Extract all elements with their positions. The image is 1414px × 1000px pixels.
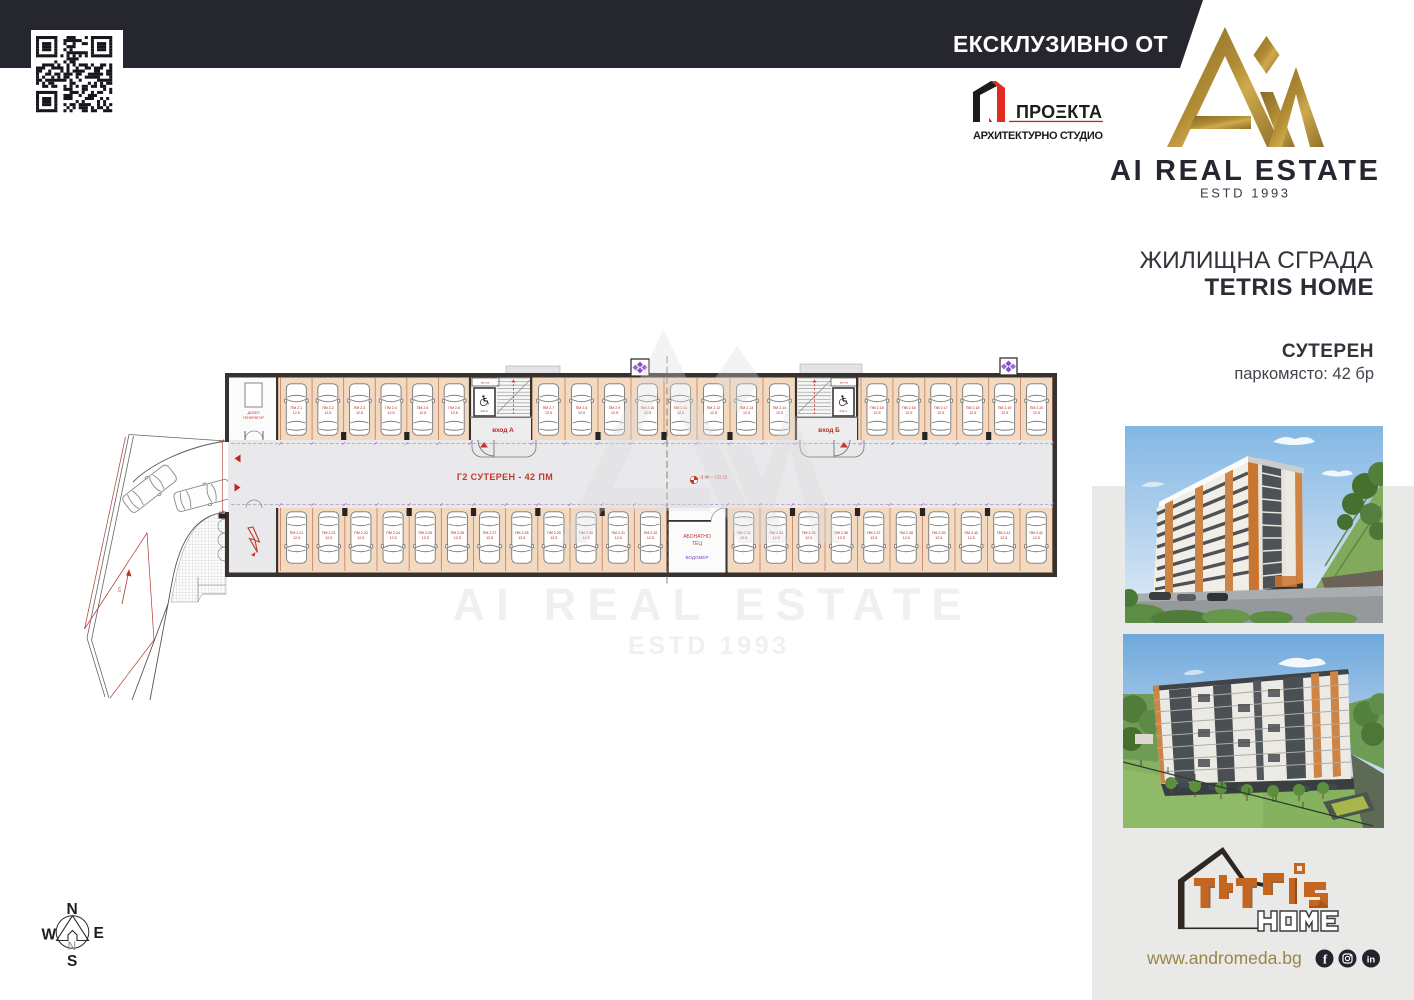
svg-text:12.5: 12.5 [486,536,493,540]
svg-text:630 кг: 630 кг [481,409,489,413]
svg-text:АБОНАТНО: АБОНАТНО [683,534,711,540]
svg-text:AI REAL ESTATE: AI REAL ESTATE [453,579,962,630]
svg-text:N: N [68,939,77,953]
svg-text:12.5: 12.5 [776,411,783,415]
svg-text:12.5: 12.5 [838,536,845,540]
svg-text:Г2 СУТЕРЕН - 42 ПМ: Г2 СУТЕРЕН - 42 ПМ [457,472,553,482]
svg-text:12.5: 12.5 [870,536,877,540]
svg-text:f: f [1323,952,1328,967]
svg-text:ул.: ул. [116,585,122,592]
svg-text:12.5: 12.5 [615,536,622,540]
svg-text:12.5: 12.5 [937,411,944,415]
svg-text:12.5: 12.5 [968,536,975,540]
svg-text:ПМ 2.15: ПМ 2.15 [870,406,884,410]
svg-text:ПМ 2.29: ПМ 2.29 [547,531,561,535]
svg-text:ПМ 2.37: ПМ 2.37 [867,531,881,535]
svg-text:12.5: 12.5 [293,536,300,540]
svg-text:12.5: 12.5 [969,411,976,415]
svg-text:ПМ 2.28: ПМ 2.28 [515,531,529,535]
svg-text:ВОДОМЕР: ВОДОМЕР [685,555,708,560]
svg-text:ПМ 2.14: ПМ 2.14 [773,406,787,410]
svg-text:ПМ 2.22: ПМ 2.22 [322,531,336,535]
svg-text:ПМ 2.26: ПМ 2.26 [451,531,465,535]
svg-text:12.5: 12.5 [325,536,332,540]
svg-text:ПМ 2.9: ПМ 2.9 [609,406,621,410]
svg-text:ESTD 1993: ESTD 1993 [1200,186,1288,201]
svg-text:in: in [1367,955,1376,966]
svg-text:12.5: 12.5 [388,411,395,415]
svg-text:ПМ 2.25: ПМ 2.25 [418,531,432,535]
svg-text:12.5: 12.5 [324,411,331,415]
svg-text:12.5: 12.5 [611,411,618,415]
svg-text:ПМ 2.7: ПМ 2.7 [543,406,555,410]
svg-text:ав.ток: ав.ток [481,381,490,385]
svg-text:ПМ 2.16: ПМ 2.16 [902,406,916,410]
svg-text:ПМ 2.19: ПМ 2.19 [998,406,1012,410]
svg-text:вход Б: вход Б [818,427,840,434]
svg-text:ПМ 2.38: ПМ 2.38 [899,531,913,535]
svg-text:ПМ 2.27: ПМ 2.27 [483,531,497,535]
svg-text:ав.ток: ав.ток [840,381,849,385]
svg-text:12.5: 12.5 [1033,411,1040,415]
svg-text:12.5: 12.5 [903,536,910,540]
svg-text:ПМ 2.23: ПМ 2.23 [354,531,368,535]
svg-text:ПМ 2.32: ПМ 2.32 [644,531,658,535]
svg-text:12.5: 12.5 [419,411,426,415]
svg-text:N: N [67,901,78,918]
svg-text:12.5: 12.5 [357,536,364,540]
svg-text:ДИЗЕЛ: ДИЗЕЛ [248,411,261,415]
svg-text:AI REAL ESTATE: AI REAL ESTATE [1110,155,1378,187]
svg-text:ПМ 2.2: ПМ 2.2 [322,406,334,410]
svg-text:12.5: 12.5 [356,411,363,415]
svg-text:вход А: вход А [492,427,514,434]
svg-text:12.5: 12.5 [935,536,942,540]
svg-text:АРХИТЕКТУРНО СТУДИО: АРХИТЕКТУРНО СТУДИО [973,130,1103,142]
svg-text:S: S [67,953,77,970]
svg-text:12.5: 12.5 [451,411,458,415]
svg-text:ТЕЦ: ТЕЦ [692,541,702,547]
svg-text:12.5: 12.5 [1001,411,1008,415]
svg-text:ESTD 1993: ESTD 1993 [628,632,786,660]
svg-text:12.5: 12.5 [873,411,880,415]
svg-text:12.5: 12.5 [293,411,300,415]
svg-text:12.5: 12.5 [578,411,585,415]
svg-text:E: E [94,925,104,942]
svg-text:12.5: 12.5 [422,536,429,540]
svg-text:ПМ 2.3: ПМ 2.3 [354,406,366,410]
svg-text:ПМ 2.39: ПМ 2.39 [932,531,946,535]
svg-text:ПМ 2.8: ПМ 2.8 [576,406,588,410]
svg-text:12.5: 12.5 [545,411,552,415]
svg-text:W: W [42,927,57,944]
svg-text:ПМ 2.31: ПМ 2.31 [611,531,625,535]
svg-text:12.5: 12.5 [390,536,397,540]
svg-text:ПМ 2.1: ПМ 2.1 [291,406,303,410]
svg-text:12.5: 12.5 [454,536,461,540]
svg-text:ПМ 2.21: ПМ 2.21 [290,531,304,535]
svg-text:ПМ 2.5: ПМ 2.5 [417,406,429,410]
svg-text:ПМ 2.18: ПМ 2.18 [966,406,980,410]
svg-text:12.5: 12.5 [1033,536,1040,540]
svg-text:12.5: 12.5 [905,411,912,415]
svg-text:ПМ 2.20: ПМ 2.20 [1030,406,1044,410]
svg-text:ПМ 2.24: ПМ 2.24 [386,531,400,535]
svg-text:12.5: 12.5 [743,411,750,415]
svg-text:ГЕНЕРАТОР: ГЕНЕРАТОР [243,416,264,420]
svg-text:ПМ 2.42: ПМ 2.42 [1029,531,1043,535]
svg-text:12.5: 12.5 [1000,536,1007,540]
svg-text:ПМ 2.41: ПМ 2.41 [997,531,1011,535]
svg-text:12.5: 12.5 [518,536,525,540]
svg-text:12.5: 12.5 [550,536,557,540]
svg-text:12.5: 12.5 [710,411,717,415]
svg-text:ПМ 2.4: ПМ 2.4 [385,406,397,410]
svg-text:12.5: 12.5 [647,536,654,540]
svg-text:ПМ 2.17: ПМ 2.17 [934,406,948,410]
svg-text:ПРОΞКТА: ПРОΞКТА [1016,102,1102,122]
svg-text:630 кг: 630 кг [840,409,848,413]
svg-text:12.5: 12.5 [805,536,812,540]
svg-text:ПМ 2.40: ПМ 2.40 [964,531,978,535]
svg-text:ПМ 2.6: ПМ 2.6 [448,406,460,410]
svg-text:ПМ 2.12: ПМ 2.12 [707,406,721,410]
